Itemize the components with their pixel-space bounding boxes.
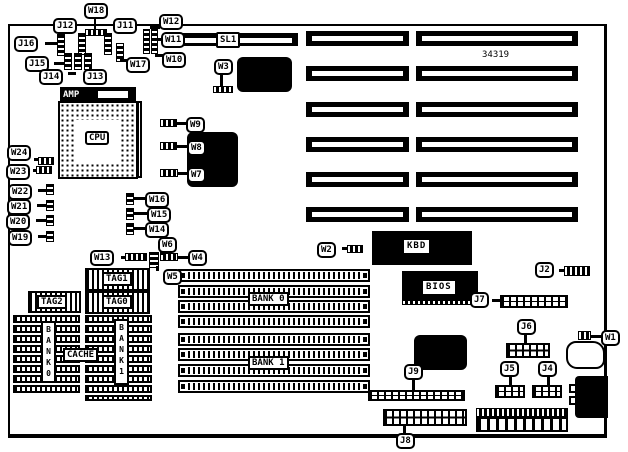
leader-w22: [38, 189, 46, 192]
slot-label-sl1: SL1: [216, 32, 240, 48]
jumper-pins-w15: [126, 208, 134, 220]
connector-label-j4: J4: [538, 361, 557, 377]
jumper-pins-w24: [38, 157, 54, 165]
connector-label-j8: J8: [396, 433, 415, 449]
leader-w14: [134, 227, 145, 230]
simm-slot: [178, 380, 370, 393]
jumper-label-w15: W15: [147, 207, 171, 223]
isa-slot-short-1: [306, 31, 409, 46]
jumper-pins-w7: [160, 169, 178, 177]
isa-slot-long-2: [416, 66, 578, 81]
jumper-label-w16: W16: [145, 192, 169, 208]
label-cache-bank1: BANK1: [114, 319, 129, 385]
isa-slot-short-6: [306, 207, 409, 222]
cache-chip-row: [85, 395, 152, 401]
jumper-label-w7: W7: [187, 167, 206, 183]
jumper-pins-w13: [125, 253, 147, 261]
jumper-label-w12: W12: [159, 14, 183, 30]
connector-label-j11: J11: [113, 18, 137, 34]
keyboard-din-connector: [575, 376, 608, 418]
jumper-pins-w20: [46, 215, 54, 226]
jumper-pins-w9: [160, 119, 177, 127]
simm-slot: [178, 315, 370, 328]
jumper-label-w22: W22: [8, 184, 32, 200]
jumper-label-w17: W17: [126, 57, 150, 73]
simm-slot: [178, 269, 370, 282]
connector-label-j5: J5: [500, 361, 519, 377]
connector-header-j7: [500, 295, 568, 308]
jumper-label-w21: W21: [7, 199, 31, 215]
leader-w23: [33, 169, 37, 172]
leader-w15: [134, 212, 147, 215]
connector-pins-j14: [74, 53, 82, 70]
label-bios: BIOS: [423, 281, 455, 294]
leader-j7: [492, 299, 500, 302]
jumper-pins-w21: [46, 200, 54, 211]
leader-w20: [36, 219, 46, 222]
chip-near-w3: [237, 57, 292, 92]
jumper-pins-w19: [46, 231, 54, 242]
isa-slot-long-3: [416, 102, 578, 117]
jumper-pins-w16: [126, 193, 134, 205]
label-cache: CACHE: [63, 348, 98, 362]
leader-j16: [45, 42, 57, 45]
leader-w5: [156, 266, 159, 271]
amp-slot-window: [98, 91, 128, 98]
speaker-outline: [566, 341, 605, 369]
label-tag1: TAG1: [102, 272, 132, 286]
jumper-label-w6: W6: [158, 237, 177, 253]
label-cache-bank0: BANK0: [41, 321, 56, 383]
jumper-label-w1: W1: [601, 330, 620, 346]
leader-j2: [559, 269, 565, 272]
jumper-label-w11: W11: [161, 32, 185, 48]
cpu-socket-top-bar: AMP: [60, 87, 136, 102]
jumper-label-w20: W20: [6, 214, 30, 230]
isa-slot-short-2: [306, 66, 409, 81]
connector-pins-j12: [78, 33, 86, 55]
leader-w2: [342, 247, 348, 250]
connector-header-j5: [495, 385, 525, 398]
jumper-pins-w22: [46, 184, 54, 195]
leader-j5: [509, 376, 512, 386]
jumper-label-w2: W2: [317, 242, 336, 258]
connector-pins-j11: [104, 33, 112, 55]
leader-j9: [412, 379, 415, 391]
leader-j14: [68, 72, 76, 75]
jumper-label-w24: W24: [7, 145, 31, 161]
connector-label-j14: J14: [39, 69, 63, 85]
power-connector-top: [476, 408, 568, 417]
simm-slot: [178, 333, 370, 346]
connector-header-j6: [506, 343, 550, 358]
jumper-label-w23: W23: [6, 164, 30, 180]
jumper-label-w9: W9: [186, 117, 205, 133]
leader-j15: [54, 62, 65, 65]
cpu-socket-lever: [137, 101, 142, 178]
label-memory-bank1: BANK 1: [248, 356, 289, 370]
leader-w8: [177, 145, 187, 148]
jumper-pins-w10-w11: [151, 29, 158, 54]
jumper-label-w18: W18: [84, 3, 108, 19]
jumper-label-w13: W13: [90, 250, 114, 266]
jumper-label-w3: W3: [214, 59, 233, 75]
label-memory-bank0: BANK 0: [248, 292, 289, 306]
leader-j4: [547, 376, 550, 386]
leader-w21: [37, 204, 46, 207]
isa-slot-long-1: [416, 31, 578, 46]
jumper-pins-w8: [160, 142, 177, 150]
isa-slot-short-5: [306, 172, 409, 187]
connector-label-j2: J2: [535, 262, 554, 278]
jumper-label-w14: W14: [145, 222, 169, 238]
connector-label-j12: J12: [53, 18, 77, 34]
jumper-pins-w23: [36, 166, 52, 174]
din-tab-lower: [569, 396, 577, 405]
leader-w3: [220, 73, 223, 87]
connector-label-j6: J6: [517, 319, 536, 335]
jumper-label-w19: W19: [8, 230, 32, 246]
connector-label-j16: J16: [14, 36, 38, 52]
jumper-pins-w14: [126, 223, 134, 235]
connector-header-j4: [532, 385, 562, 398]
leader-w16: [134, 197, 145, 200]
jumper-label-w8: W8: [187, 140, 206, 156]
connector-pins-j15: [64, 53, 72, 70]
leader-w24: [34, 158, 39, 161]
connector-label-j13: J13: [83, 69, 107, 85]
connector-header-j9: [368, 390, 465, 401]
din-tab-upper: [569, 384, 577, 393]
jumper-pins-w2: [347, 245, 363, 253]
jumper-label-w10: W10: [162, 52, 186, 68]
connector-label-j7: J7: [470, 292, 489, 308]
leader-w13: [121, 256, 126, 259]
cpu-socket-brand: AMP: [63, 90, 79, 100]
jumper-label-w5: W5: [163, 269, 182, 285]
cpu-label: CPU: [85, 131, 109, 145]
label-tag0: TAG0: [102, 295, 132, 309]
jumper-pins-w3: [213, 86, 233, 93]
cache-chip-row: [13, 385, 80, 393]
board-part-number: 34319: [482, 50, 509, 60]
leader-w19: [38, 235, 46, 238]
isa-slot-long-4: [416, 137, 578, 152]
isa-slot-long-5: [416, 172, 578, 187]
connector-pins-j2: [564, 266, 590, 276]
bios-socket-pins: [402, 300, 478, 305]
label-tag2: TAG2: [37, 295, 67, 309]
chip-above-j9: [414, 335, 467, 370]
connector-label-j9: J9: [404, 364, 423, 380]
leader-j6: [524, 334, 527, 344]
isa-slot-long-6: [416, 207, 578, 222]
isa-slot-short-3: [306, 102, 409, 117]
power-connector-teeth: [476, 417, 568, 432]
jumper-pins-w12: [143, 29, 150, 54]
jumper-label-w4: W4: [188, 250, 207, 266]
label-kbd: KBD: [404, 240, 429, 253]
connector-header-j8: [383, 409, 467, 426]
motherboard-layout-diagram: W18 J12 J11 J16 J15 J14 J13 W17 W12 W11 …: [0, 0, 628, 452]
cache-chip-row: [85, 385, 152, 393]
isa-slot-short-4: [306, 137, 409, 152]
